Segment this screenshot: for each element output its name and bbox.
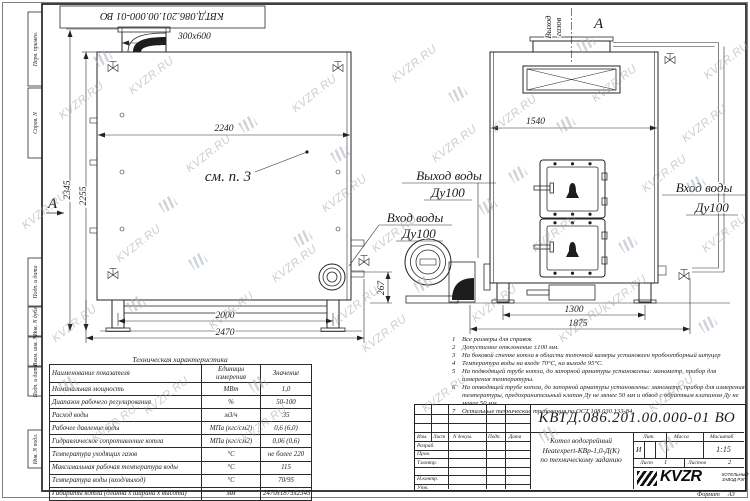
- gas-outlet-label: газов: [553, 17, 563, 36]
- sheet-value: 1: [664, 459, 667, 466]
- spec-name-cell: Рабочее давление воды: [50, 422, 202, 435]
- lit-header: Лит.: [643, 434, 655, 440]
- mass-header: Масса: [674, 434, 689, 440]
- note-line: 3На боковой стенке котла в области топоч…: [452, 352, 745, 360]
- side-label: Инв. N подл.: [32, 434, 39, 465]
- top-stamp: КВТД.086.201.00.000-01 ВО: [60, 6, 265, 28]
- dim-front-base: 1300: [565, 305, 584, 315]
- spec-name-cell: Температура воды (вход/выход): [50, 474, 202, 487]
- spec-units-cell: МПа (кгс/см2): [202, 435, 261, 448]
- col-data: Дата: [509, 434, 521, 440]
- spec-name-cell: Номинальная мощность: [50, 383, 202, 396]
- note-text: Температура воды на входе 70°С, на выход…: [462, 360, 745, 368]
- side-label: Справ. N: [33, 111, 39, 134]
- kvzr-logo-icon: [637, 471, 657, 486]
- ref-note: см. п. 3: [205, 169, 251, 185]
- row-utv: Утв.: [417, 485, 428, 491]
- dim-total: 2470: [216, 328, 235, 338]
- spec-units-cell: °С: [202, 474, 261, 487]
- spec-units-cell: °С: [202, 461, 261, 474]
- spec-header-row: Наименование показателя Единицы измерени…: [50, 365, 312, 383]
- row-prov: Пров.: [417, 451, 430, 457]
- col-list: Лист: [433, 434, 445, 440]
- note-number: 5: [452, 368, 462, 384]
- spec-units-cell: МПа (кгс/см2): [202, 422, 261, 435]
- row-tkontr: Т.контр.: [417, 460, 437, 466]
- spec-row: Рабочее давление водыМПа (кгс/см2)0,6 (6…: [50, 422, 312, 435]
- water-inlet-right-dn: Ду100: [693, 200, 729, 215]
- dim-width: 2240: [215, 124, 234, 134]
- spec-units-cell: %: [202, 396, 261, 409]
- spec-name-cell: Диапазон рабочего регулирования: [50, 396, 202, 409]
- spec-row: Гидравлическое сопротивление котлаМПа (к…: [50, 435, 312, 448]
- dim-base: 2000: [216, 311, 235, 321]
- product-name-line2: Heatexpert-КВр-1,0-Д(К): [531, 446, 631, 456]
- note-number: 2: [452, 344, 462, 352]
- water-outlet-label: Выход воды: [416, 168, 482, 183]
- note-text: Все размеры для справок: [462, 336, 745, 344]
- sheets-value: 2: [728, 459, 731, 466]
- kvzr-logo-text: KVZR: [660, 468, 702, 486]
- spec-value-cell: 70/95: [261, 474, 312, 487]
- blower-fan: [405, 239, 490, 303]
- company-name: КОТЕЛЬНЫЙ ЗАВОД РЭП: [722, 472, 748, 482]
- spec-row: Расход водым3/ч35: [50, 409, 312, 422]
- spec-value-cell: 50-100: [261, 396, 312, 409]
- note-number: 1: [452, 336, 462, 344]
- spec-units-cell: МВт: [202, 383, 261, 396]
- note-text: На боковой стенке котла в области топочн…: [462, 352, 745, 360]
- spec-row: Температура уходящих газов°Сне более 220: [50, 448, 312, 461]
- spec-row: Номинальная мощностьМВт1,0: [50, 383, 312, 396]
- spec-name-cell: Максимальная рабочая температура воды: [50, 461, 202, 474]
- boiler-front-view: Выход газов А 1540 1300: [455, 8, 730, 334]
- note-number: 3: [452, 352, 462, 360]
- lit-value: И: [636, 445, 641, 454]
- note-number: 4: [452, 360, 462, 368]
- boiler-side-view: 300x600 2240 см. п. 3 2345 2255 А: [46, 27, 392, 343]
- product-name-line1: Котел водогрейный: [531, 436, 631, 446]
- spec-value-cell: 2470х1875х2345: [261, 487, 312, 500]
- top-stamp-number: КВТД.086.201.00.000-01 ВО: [100, 10, 225, 21]
- spec-row: Температура воды (вход/выход)°С70/95: [50, 474, 312, 487]
- note-line: 4Температура воды на входе 70°С, на выхо…: [452, 360, 745, 368]
- spec-value-cell: 115: [261, 461, 312, 474]
- doc-number: КВТД.086.201.00.000-01 ВО: [530, 405, 744, 431]
- spec-value-cell: не более 220: [261, 448, 312, 461]
- note-text: Допустимое отклонение ±100 мм.: [462, 344, 745, 352]
- dim-outlet-height: 267: [377, 280, 387, 296]
- dim-chimney: 300x600: [177, 32, 211, 42]
- spec-value-cell: 0,06 (0,6): [261, 435, 312, 448]
- spec-header-name: Наименование показателя: [50, 365, 202, 383]
- side-label: Перв. примен.: [33, 32, 39, 67]
- water-inlet-dn: Ду100: [400, 226, 436, 241]
- spec-name-cell: Температура уходящих газов: [50, 448, 202, 461]
- spec-name-cell: Габариты котла (длинна х ширина х высота…: [50, 487, 202, 500]
- format-label: ФорматА3: [697, 491, 743, 498]
- spec-units-cell: м3/ч: [202, 409, 261, 422]
- section-mark-a-top: А: [593, 16, 604, 32]
- spec-value-cell: 1,0: [261, 383, 312, 396]
- dim-front-total: 1875: [569, 319, 588, 329]
- title-block: КВТД.086.201.00.000-01 ВО Изм. Лист N до…: [414, 404, 746, 491]
- dim-height-total: 2345: [63, 180, 73, 199]
- water-inlet-right-label: Вход воды: [676, 180, 733, 195]
- row-razrab: Разраб.: [417, 443, 435, 449]
- spec-table-title: Техническая характеристика: [49, 355, 311, 364]
- scale-header: Масштаб: [710, 434, 733, 440]
- water-outlet-dn: Ду100: [429, 185, 465, 200]
- note-line: 1Все размеры для справок: [452, 336, 745, 344]
- product-name-line3: по техническому заданию: [531, 455, 631, 465]
- section-mark-a: А: [47, 196, 58, 212]
- spec-row: Максимальная рабочая температура воды°С1…: [50, 461, 312, 474]
- spec-table: Техническая характеристика Наименование …: [49, 355, 311, 501]
- spec-value-cell: 0,6 (6,0): [261, 422, 312, 435]
- note-text: На подводящей трубе котла, до запорной а…: [462, 368, 745, 384]
- spec-header-value: Значение: [261, 365, 312, 383]
- side-label: Подп. и дата: [32, 364, 39, 398]
- spec-units-cell: °С: [202, 448, 261, 461]
- row-nkontr: Н.контр.: [417, 476, 438, 482]
- sheet-label: Лист: [640, 460, 653, 466]
- spec-name-cell: Гидравлическое сопротивление котла: [50, 435, 202, 448]
- spec-value-cell: 35: [261, 409, 312, 422]
- spec-header-units: Единицы измерения: [202, 365, 261, 383]
- format-value: А3: [728, 491, 735, 498]
- side-label: Инв. N дубл.: [32, 306, 39, 337]
- note-line: 5На подводящей трубе котла, до запорной …: [452, 368, 745, 384]
- scale-value: 1:15: [703, 445, 744, 454]
- note-line: 2Допустимое отклонение ±100 мм.: [452, 344, 745, 352]
- frame-side-column: Перв. примен. Справ. N Подп. и дата Инв.…: [28, 12, 42, 468]
- col-podp: Подп.: [488, 434, 501, 440]
- spec-name-cell: Расход воды: [50, 409, 202, 422]
- water-inlet-label: Вход воды: [387, 210, 444, 225]
- drawing-sheet: { "sheet": { "watermark": "KVZR.RU", "to…: [0, 0, 750, 500]
- dim-front-width: 1540: [526, 117, 545, 127]
- side-label: Подп. и дата: [32, 265, 39, 299]
- gas-outlet-label: Выход: [543, 15, 553, 39]
- side-label: Взам. инв. N: [33, 335, 39, 366]
- spec-row: Габариты котла (длинна х ширина х высота…: [50, 487, 312, 500]
- product-name: Котел водогрейный Heatexpert-КВр-1,0-Д(К…: [531, 436, 631, 465]
- dim-height-body: 2255: [79, 186, 89, 205]
- format-word: Формат: [697, 491, 720, 498]
- spec-row: Диапазон рабочего регулирования%50-100: [50, 396, 312, 409]
- col-ndoc: N докум.: [453, 434, 472, 440]
- spec-units-cell: мм: [202, 487, 261, 500]
- company-name-line2: ЗАВОД РЭП: [722, 477, 748, 482]
- sheets-label: Листов: [688, 460, 706, 466]
- col-izm: Изм.: [417, 434, 427, 440]
